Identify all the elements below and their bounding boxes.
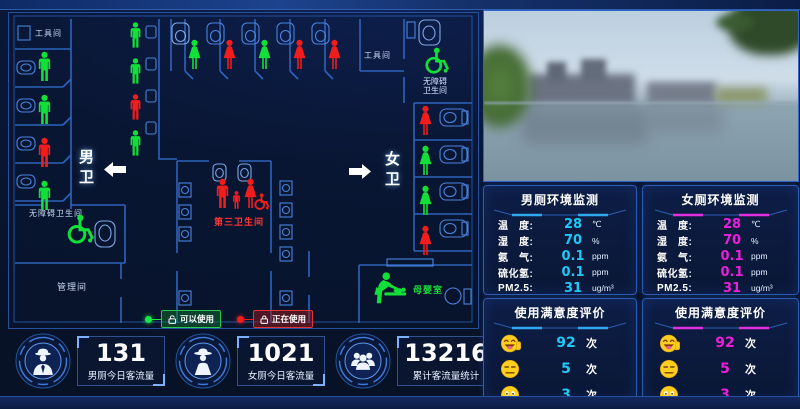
baby-room-label: 母婴室 <box>413 283 443 296</box>
total-traffic-label: 累计客流量统计 <box>413 368 480 382</box>
stat-ring <box>334 332 392 390</box>
mens-urinals-occupancy <box>129 22 142 161</box>
tool-room-label: 工具间 <box>364 50 391 61</box>
wheelchair-icon <box>65 214 95 244</box>
person-available-icon <box>129 58 142 89</box>
wheelchair-icon <box>253 193 270 210</box>
womens-top-stalls-occupancy <box>187 39 342 75</box>
person-available-icon <box>418 185 433 221</box>
mens-area-label: 男卫 <box>75 149 96 189</box>
env-rows: 温 度:28℃ 湿 度:70% 氨 气:0.1ppm 硫化氢:0.1ppm PM… <box>484 217 636 296</box>
mens-direction-arrow-icon <box>104 162 126 177</box>
restroom-floorplan: 工具间 工具间 男卫 女卫 无障碍 卫生间 无障碍卫生间 第三卫生间 管理间 母… <box>8 12 479 329</box>
lock-open-icon <box>168 315 177 324</box>
env-row: 温 度:28℃ <box>643 217 798 233</box>
stat-ring <box>174 332 232 390</box>
laughing-face-icon <box>500 333 546 354</box>
neutral-face-icon <box>500 359 546 379</box>
panel-title: 男厕环境监测 <box>484 186 636 208</box>
management-room-label: 管理间 <box>57 280 87 293</box>
person-occupied-icon <box>418 225 433 261</box>
womens-satisfaction-panel: 使用满意度评价 92次 5次 3次 <box>642 298 799 401</box>
total-traffic-stat: 13216 累计客流量统计 <box>334 332 495 390</box>
person-available-icon <box>418 145 433 181</box>
person-available-icon <box>129 130 142 161</box>
womens-area-label: 女卫 <box>381 151 402 191</box>
env-row: 硫化氢:0.1ppm <box>643 264 798 280</box>
env-row: 湿 度:70% <box>643 233 798 249</box>
womens-direction-arrow-icon <box>349 164 371 179</box>
env-row: PM2.5:31ug/m³ <box>484 280 636 296</box>
footer-strip <box>0 396 800 409</box>
title-underline <box>490 209 630 217</box>
satisfaction-row: 5次 <box>643 356 798 382</box>
legend-available-label: 可以使用 <box>180 313 214 325</box>
person-occupied-icon <box>222 39 237 75</box>
env-rows: 温 度:28℃ 湿 度:70% 氨 气:0.1ppm 硫化氢:0.1ppm PM… <box>643 217 798 296</box>
monitor-camera-view <box>483 10 799 182</box>
person-occupied-icon <box>129 94 142 125</box>
womens-traffic-label: 女厕今日客流量 <box>248 368 315 382</box>
womens-traffic-value: 1021 <box>248 341 315 365</box>
header-strip <box>0 0 800 10</box>
title-underline <box>490 322 630 330</box>
woman-with-hat-icon <box>191 347 216 375</box>
mens-traffic-value: 131 <box>96 341 146 365</box>
womens-environment-panel: 女厕环境监测 温 度:28℃ 湿 度:70% 氨 气:0.1ppm 硫化氢:0.… <box>642 185 799 295</box>
person-available-icon <box>187 39 202 75</box>
env-row: 湿 度:70% <box>484 233 636 249</box>
womens-right-stalls-occupancy <box>418 105 433 261</box>
panel-title: 女厕环境监测 <box>643 186 798 208</box>
person-available-icon <box>257 39 272 75</box>
wheelchair-icon <box>423 47 450 74</box>
accessible-restroom-top-label: 无障碍 卫生间 <box>412 77 458 95</box>
third-restroom-label: 第三卫生间 <box>214 215 264 228</box>
env-row: 温 度:28℃ <box>484 217 636 233</box>
env-row: 硫化氢:0.1ppm <box>484 264 636 280</box>
tool-room-label: 工具间 <box>35 28 62 39</box>
panel-title: 使用满意度评价 <box>484 299 636 321</box>
stat-ring <box>14 332 72 390</box>
mens-left-stalls-occupancy <box>37 51 52 216</box>
laughing-face-icon <box>659 333 705 354</box>
man-with-hat-icon <box>31 347 56 375</box>
panel-title: 使用满意度评价 <box>643 299 798 321</box>
person-occupied-icon <box>327 39 342 75</box>
baby-care-icon <box>372 269 410 309</box>
person-occupied-icon <box>418 105 433 141</box>
person-available-icon <box>37 94 52 130</box>
stat-box: 13216 累计客流量统计 <box>397 336 495 386</box>
satisfaction-row: 5次 <box>484 356 636 382</box>
person-occupied-icon <box>37 137 52 173</box>
legend-occupied[interactable]: 正在使用 <box>237 311 313 327</box>
legend-available[interactable]: 可以使用 <box>145 311 221 327</box>
satisfaction-row: 92次 <box>484 330 636 356</box>
env-row: PM2.5:31ug/m³ <box>643 280 798 296</box>
mens-satisfaction-panel: 使用满意度评价 92次 5次 3次 <box>483 298 637 401</box>
person-available-icon <box>129 22 142 53</box>
satisfaction-row: 92次 <box>643 330 798 356</box>
person-available-icon <box>37 51 52 87</box>
title-underline <box>651 322 791 330</box>
title-underline <box>651 209 791 217</box>
people-group-icon <box>350 350 377 373</box>
legend-occupied-label: 正在使用 <box>272 313 306 325</box>
stat-box: 1021 女厕今日客流量 <box>237 336 325 386</box>
mens-traffic-label: 男厕今日客流量 <box>88 368 155 382</box>
womens-traffic-stat: 1021 女厕今日客流量 <box>174 332 325 390</box>
total-traffic-value: 13216 <box>404 341 488 365</box>
env-row: 氨 气:0.1ppm <box>643 249 798 265</box>
family-restroom-icon <box>215 178 258 209</box>
env-row: 氨 气:0.1ppm <box>484 249 636 265</box>
person-occupied-icon <box>292 39 307 75</box>
neutral-face-icon <box>659 359 705 379</box>
stat-box: 131 男厕今日客流量 <box>77 336 165 386</box>
occupied-dot-icon <box>237 316 244 323</box>
available-dot-icon <box>145 316 152 323</box>
mens-environment-panel: 男厕环境监测 温 度:28℃ 湿 度:70% 氨 气:0.1ppm 硫化氢:0.… <box>483 185 637 295</box>
person-available-icon <box>37 180 52 216</box>
mens-traffic-stat: 131 男厕今日客流量 <box>14 332 165 390</box>
lock-closed-icon <box>260 315 269 324</box>
